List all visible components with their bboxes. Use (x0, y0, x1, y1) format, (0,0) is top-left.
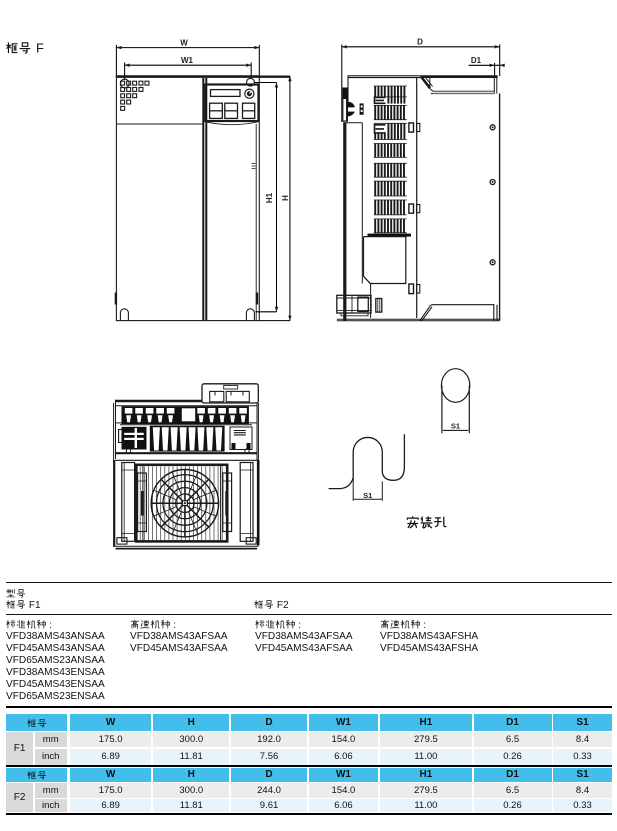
svg-text::: : (49, 620, 52, 631)
svg-text::: : (423, 620, 426, 631)
svg-text:F1: F1 (29, 600, 41, 611)
svg-text:W1: W1 (181, 56, 194, 65)
svg-text:F2: F2 (277, 600, 289, 611)
svg-text:H: H (281, 195, 290, 201)
svg-text:D: D (417, 38, 423, 47)
svg-text:S1: S1 (363, 491, 372, 500)
svg-text:W: W (180, 39, 188, 48)
svg-text::: : (173, 620, 176, 631)
svg-text:D1: D1 (471, 56, 482, 65)
svg-text:S1: S1 (451, 422, 460, 431)
svg-text::: : (298, 620, 301, 631)
svg-text:H1: H1 (265, 192, 274, 203)
